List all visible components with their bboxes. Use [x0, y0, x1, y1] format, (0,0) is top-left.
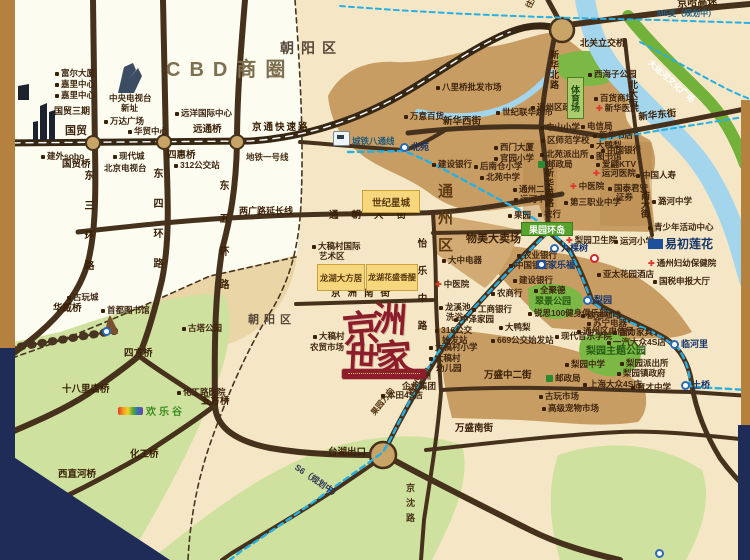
bridge-sihui [157, 135, 171, 149]
poi-dot-icon [608, 187, 612, 191]
light-rail-train-icon [333, 131, 350, 146]
poi-dot-icon [480, 176, 484, 180]
poi-dot-icon [113, 155, 117, 159]
map-label: 大稿村 [429, 354, 461, 363]
map-label: 五方桥 [201, 397, 230, 407]
carrefour-logo-icon [537, 260, 546, 269]
map-label: 312公交站 [174, 161, 220, 170]
poi-dot-icon [508, 214, 512, 218]
map-label: 建设银行 [432, 160, 472, 169]
map-label: 家乐福 [548, 261, 575, 270]
map-label: 北大街 [628, 80, 637, 107]
map-label: 青少年活动中心 [648, 223, 714, 232]
hospital-cross-icon: ✚ [648, 260, 655, 268]
poi-dot-icon [636, 174, 640, 178]
poi-dot-icon [583, 383, 587, 387]
poi-dot-icon [607, 341, 611, 345]
map-label: 城铁八通线 [352, 137, 395, 146]
poi-dot-icon [593, 134, 597, 138]
poi-dot-icon [538, 213, 542, 217]
map-label: 土桥 [681, 381, 710, 390]
poi-dot-icon [631, 386, 635, 390]
poi-dot-icon [55, 83, 59, 87]
map-label: ✚运河医院 [593, 169, 636, 178]
hospital-cross-icon: ✚ [596, 105, 603, 113]
map-label: 世纪联华超市 [496, 108, 553, 117]
map-label: 朝阳区 [280, 41, 343, 55]
map-label: 远洋国际中心 [175, 109, 232, 118]
poi-dot-icon [513, 279, 517, 283]
map-label: 西海子公园 [588, 70, 637, 79]
poi-dot-icon [404, 115, 408, 119]
poi-dot-icon [555, 335, 559, 339]
map-label: 新华南路 [544, 168, 553, 208]
map-label: 大中电器 [442, 256, 482, 265]
map-label: 梨园派出所 [620, 359, 669, 368]
poi-dot-icon [174, 164, 178, 168]
poi-dot-icon [381, 394, 385, 398]
map-label: 本田4S店 [381, 391, 423, 400]
map-label: 北苑派出所 [540, 150, 589, 159]
poi-dot-icon [472, 308, 476, 312]
poi-dot-icon [590, 144, 594, 148]
map-border-strip [741, 100, 750, 425]
map-label: 中山小学 [540, 123, 580, 132]
poi-dot-icon [429, 346, 433, 350]
poi-dot-icon [182, 327, 186, 331]
poi-dot-icon [432, 163, 436, 167]
map-label: CBD商圈 [166, 60, 294, 80]
poi-dot-icon [496, 111, 500, 115]
map-label: 育才中学 [631, 383, 671, 392]
poi-dot-icon [313, 335, 317, 339]
map-label: 邮政局 [546, 374, 581, 383]
poi-dot-icon [41, 155, 45, 159]
map-label: 华威桥 [53, 304, 82, 314]
poi-dot-icon [540, 153, 544, 157]
map-label: 地铁一号线 [246, 153, 289, 162]
map-label: 首都图书馆 [101, 306, 150, 315]
map-label: 北关立交桥 [580, 39, 625, 48]
map-label: 大稿村小学 [429, 343, 478, 352]
metro-station-icon [400, 143, 409, 152]
map-label: 西直河桥 [58, 470, 96, 480]
map-label: 西门大厦 [494, 143, 534, 152]
map-label: 南大街 [640, 191, 649, 218]
map-label: 幼儿园 [436, 364, 462, 373]
map-label: 东三环路 [82, 170, 92, 290]
map-label: ✚中医院 [570, 182, 604, 191]
map-label: M6支（规划中） [657, 10, 716, 18]
map-canvas: 富尔大厦嘉里中心嘉里中心国贸三期国贸中央电视台新址万达广场华贸中心远洋国际中心建… [0, 0, 750, 560]
bridge-guomao [86, 136, 100, 150]
map-label: 化工路医院 [177, 388, 226, 397]
poi-dot-icon [528, 312, 532, 316]
map-label: 八里桥批发市场 [436, 83, 502, 92]
map-label: 新华书店 [593, 131, 633, 140]
map-label: ✚通州妇幼保健院 [648, 259, 716, 268]
map-label: 农贸市场 [310, 343, 344, 352]
map-label: 古玩城 [67, 293, 99, 302]
map-label: 区师范学校 [541, 136, 590, 145]
map-label: 大鸭梨 [499, 323, 531, 332]
map-border-strip [0, 348, 15, 560]
map-label: 临河里 [670, 340, 708, 349]
map-label: 国贸桥 [62, 160, 91, 170]
map-label: 京沈路 [405, 483, 414, 528]
mall-logo-icon [590, 254, 599, 263]
poi-dot-icon [491, 339, 495, 343]
map-label: 强力家具 [613, 328, 653, 337]
map-label: 大稿村 [313, 332, 345, 341]
poi-dot-icon [653, 280, 657, 284]
map-label: 建设银行 [513, 276, 553, 285]
poi-dot-icon [539, 395, 543, 399]
map-label: 梨园主题公园 [586, 347, 646, 357]
map-label: 华贸中心 [128, 127, 168, 136]
map-label: 易初莲花 [665, 238, 713, 250]
poi-dot-icon [613, 331, 617, 335]
map-label: 北苑 [400, 143, 429, 152]
map-label: 化工桥 [130, 450, 159, 460]
poi-dot-icon [620, 362, 624, 366]
map-label: 富尔大厦 [55, 69, 95, 78]
guomao-tower-1 [40, 103, 47, 140]
map-label: 全聚德 [534, 286, 566, 295]
happy-valley-logo-icon [118, 407, 143, 415]
map-label: 龙溪池 [439, 303, 471, 312]
beiguan-interchange [550, 18, 574, 42]
map-label: 东五环路 [217, 180, 227, 312]
poi-dot-icon [648, 226, 652, 230]
map-label: 高级宠物市场 [542, 404, 599, 413]
map-label: 农商行 [491, 289, 523, 298]
map-label: 梨园镇政府 [617, 369, 666, 378]
map-label: 316公交 [435, 326, 472, 335]
map-label: 中泽家园 [454, 315, 494, 324]
map-label: 京通快速路 [252, 123, 310, 133]
property-logo-banner [342, 369, 426, 379]
map-label: 两广路延长线 [239, 207, 293, 216]
poi-dot-icon [175, 112, 179, 116]
hills-3 [551, 445, 706, 560]
map-label: 现代城 [113, 152, 145, 161]
map-label: 国税申报大厅 [653, 277, 710, 286]
poi-dot-icon [564, 201, 568, 205]
poi-dot-icon [509, 264, 513, 268]
poi-dot-icon [514, 198, 518, 202]
map-label: 嘉里中心 [55, 80, 95, 89]
map-label: 新址 [121, 104, 138, 113]
map-label: 工商银行 [472, 305, 512, 314]
map-label: 万达广场 [104, 117, 144, 126]
poi-dot-icon [513, 188, 517, 192]
poi-dot-icon [55, 72, 59, 76]
poi-dot-icon [101, 309, 105, 313]
poi-dot-icon [439, 306, 443, 310]
map-label: 朝阳区 [248, 315, 296, 326]
map-label: 北京电视台 [104, 164, 147, 173]
poi-dot-icon [540, 126, 544, 130]
map-label: 现代音乐学院 [555, 332, 612, 341]
poi-dot-icon [67, 296, 71, 300]
road-wansheng-south [426, 432, 750, 450]
hospital-cross-icon: ✚ [593, 170, 600, 178]
map-label: 十八里店桥 [62, 385, 110, 395]
poi-dot-icon [454, 318, 458, 322]
poi-dot-icon [312, 245, 316, 249]
poi-dot-icon [491, 292, 495, 296]
map-label: 梨园 [583, 296, 612, 305]
map-label: 后南仓小学 [474, 162, 523, 171]
map-label: 欢乐谷 [146, 408, 185, 418]
map-label: 四方桥 [124, 349, 153, 359]
poi-dot-icon [474, 165, 478, 169]
poi-dot-icon [542, 407, 546, 411]
bridge-wuhuan [230, 135, 244, 149]
map-border-strip [0, 0, 15, 348]
map-landmark-box: 龙湖大方居 [317, 264, 365, 291]
hospital-cross-icon: ✚ [435, 281, 442, 289]
taihu-roundabout [370, 442, 396, 468]
map-label: 万盛中二街 [484, 371, 532, 381]
map-label: 四惠桥 [167, 151, 196, 161]
map-label: 怡乐中路 [416, 238, 426, 348]
map-label: 翠景公园 [535, 297, 571, 306]
guomao-tower-3 [33, 121, 38, 140]
poi-dot-icon [614, 240, 618, 244]
poi-dot-icon [494, 146, 498, 150]
poi-dot-icon [588, 73, 592, 77]
map-label: 新华西街 [443, 117, 481, 127]
map-label: 嘉里中心 [55, 91, 95, 100]
poi-dot-icon [597, 273, 601, 277]
map-label: 亚太花园酒店 [597, 270, 654, 279]
metro-station-icon [670, 340, 679, 349]
metro-station-icon [655, 549, 664, 558]
poi-dot-icon [652, 200, 656, 204]
map-label: 农行 [538, 210, 561, 219]
poi-dot-icon [442, 259, 446, 263]
map-label: 中央电视台 [109, 94, 152, 103]
map-label: 梨园中学 [565, 360, 605, 369]
map-landmark-box: 世纪星城 [362, 190, 420, 213]
poi-dot-icon [436, 86, 440, 90]
map-label: 669公交始发站 [491, 336, 554, 345]
map-label: 果园 [508, 211, 531, 220]
map-label: 中国人寿 [636, 171, 676, 180]
metro-station-icon [681, 381, 690, 390]
poi-dot-icon [429, 357, 433, 361]
post-office-icon [546, 375, 553, 382]
poi-dot-icon [617, 372, 621, 376]
poi-dot-icon [534, 289, 538, 293]
poi-dot-icon [565, 363, 569, 367]
map-label: 远通桥 [193, 125, 222, 135]
map-label: 农业银行 [517, 251, 557, 260]
map-landmark-box: 龙湖花盛香醍 [366, 264, 418, 291]
poi-dot-icon [499, 326, 503, 330]
poi-dot-icon [177, 391, 181, 395]
poi-dot-icon [594, 97, 598, 101]
poi-dot-icon [581, 125, 585, 129]
map-label: 通州区 [437, 183, 452, 264]
map-label: 古塔公园 [182, 324, 222, 333]
metro-station-icon [102, 327, 111, 336]
poi-dot-icon [590, 155, 594, 159]
map-border-strip [648, 239, 663, 249]
map-label: 物美大卖场 [466, 234, 521, 245]
small-tower [18, 84, 29, 100]
poi-dot-icon [517, 254, 521, 258]
poi-dot-icon [128, 130, 132, 134]
map-label: 潞河中学 [652, 197, 692, 206]
poi-dot-icon [435, 329, 439, 333]
map-label: 万意百货 [404, 112, 444, 121]
map-label: 台湖出口 [328, 448, 366, 458]
map-label: 北苑中学 [480, 173, 520, 182]
poi-dot-icon [541, 139, 545, 143]
map-label: 新华北路 [549, 50, 558, 90]
map-border-strip [738, 425, 750, 560]
map-label: 国贸三期 [54, 107, 90, 116]
map-label: 古玩市场 [539, 392, 579, 401]
metro-station-icon [583, 296, 592, 305]
map-label: 东四环路 [151, 168, 161, 288]
map-label: 国贸 [65, 126, 87, 137]
poi-dot-icon [581, 314, 585, 318]
map-landmark-box: 体育场 [567, 77, 584, 119]
map-label: ✚中医院 [435, 280, 469, 289]
map-landmark-box: 果园环岛 [521, 222, 573, 236]
map-label: 第三职业中学 [564, 198, 621, 207]
poi-dot-icon [55, 94, 59, 98]
map-label: 艺术区 [319, 252, 345, 261]
poi-dot-icon [104, 120, 108, 124]
map-label: 大稿村国际 [312, 242, 361, 251]
poi-dot-icon [596, 163, 600, 167]
map-label: 万盛南街 [455, 424, 493, 434]
hospital-cross-icon: ✚ [570, 183, 577, 191]
